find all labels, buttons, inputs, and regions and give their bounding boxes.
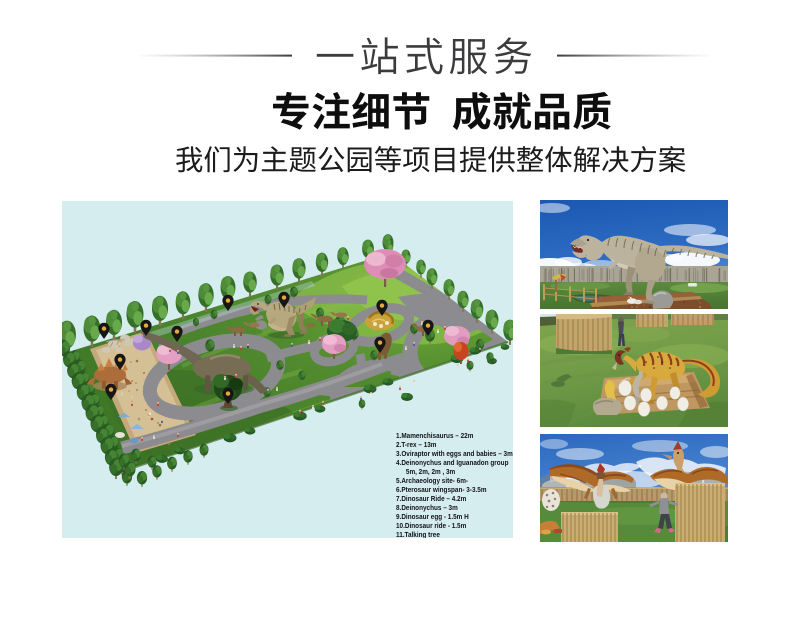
svg-text:5m, 2m, 2m , 3m: 5m, 2m, 2m , 3m: [406, 469, 455, 476]
svg-text:8.Deinonychus – 3m: 8.Deinonychus – 3m: [396, 505, 458, 512]
svg-text:10.Dinosaur ride - 1.5m: 10.Dinosaur ride - 1.5m: [396, 523, 466, 530]
svg-text:4.Deinonychus and Iguanadon gr: 4.Deinonychus and Iguanadon group: [396, 460, 508, 467]
svg-text:11.Talking tree: 11.Talking tree: [396, 532, 440, 538]
svg-text:6.Pterosaur wingspan- 3-3.5m: 6.Pterosaur wingspan- 3-3.5m: [396, 487, 486, 494]
svg-text:1.Mamenchisaurus – 22m: 1.Mamenchisaurus – 22m: [396, 433, 473, 440]
svg-text:5.Archaeology site- 6m-: 5.Archaeology site- 6m-: [396, 478, 468, 485]
svg-text:3.Oviraptor with eggs and babi: 3.Oviraptor with eggs and babies – 3m: [396, 451, 513, 458]
svg-text:7.Dinosaur Ride – 4.2m: 7.Dinosaur Ride – 4.2m: [396, 496, 466, 503]
svg-text:2.T-rex – 13m: 2.T-rex – 13m: [396, 442, 436, 449]
svg-text:9.Dinosaur egg - 1.5m H: 9.Dinosaur egg - 1.5m H: [396, 514, 469, 521]
